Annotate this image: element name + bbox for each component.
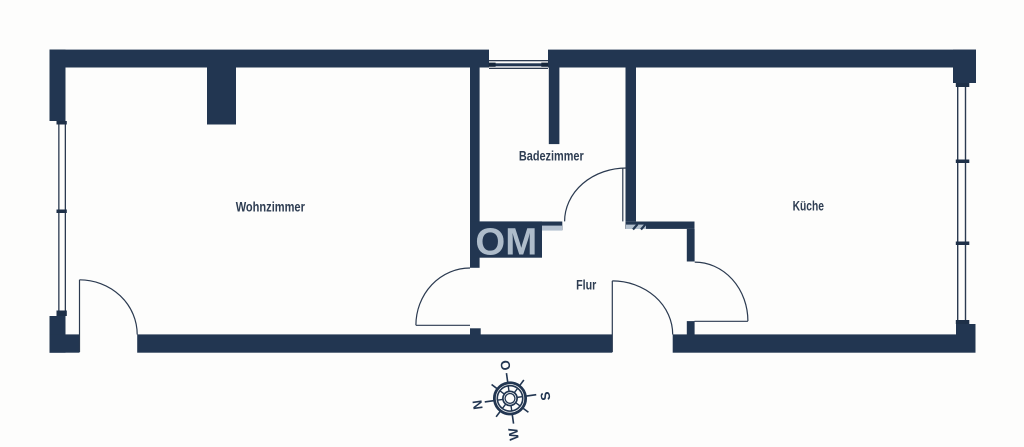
- svg-text:Wohnzimmer: Wohnzimmer: [236, 199, 306, 214]
- svg-text:Küche: Küche: [793, 199, 825, 214]
- svg-text:Flur: Flur: [576, 277, 597, 292]
- svg-text:O: O: [497, 359, 513, 371]
- svg-text:Badezimmer: Badezimmer: [519, 149, 584, 164]
- svg-text:OM: OM: [475, 221, 537, 263]
